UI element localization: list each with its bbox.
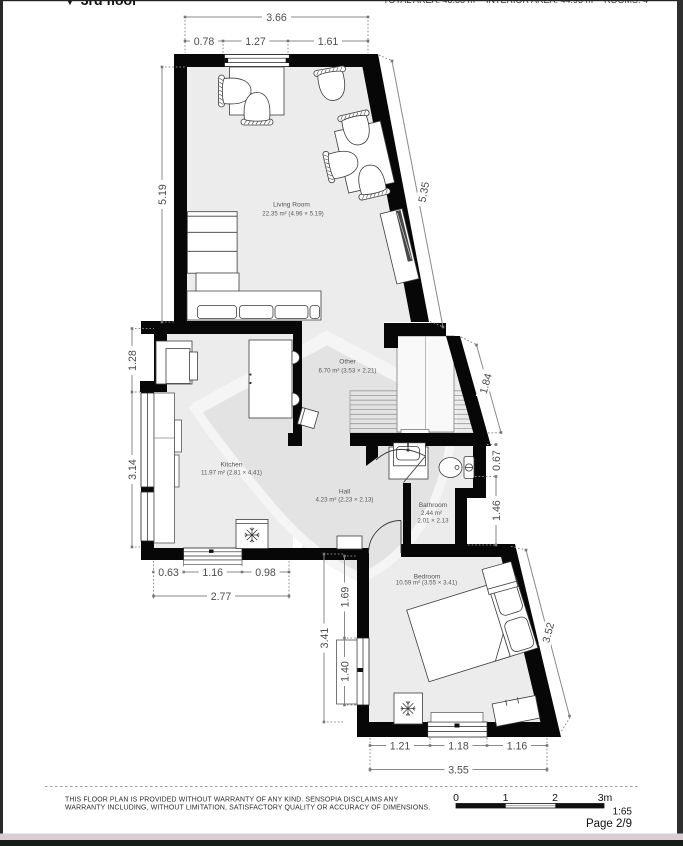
- svg-text:Page 2/9: Page 2/9: [586, 818, 632, 830]
- svg-text:10.59 m² (3.55 × 3.41): 10.59 m² (3.55 × 3.41): [396, 579, 457, 586]
- svg-text:THIS FLOOR PLAN IS PROVIDED WI: THIS FLOOR PLAN IS PROVIDED WITHOUT WARR…: [65, 797, 399, 804]
- svg-text:5.19: 5.19: [157, 184, 169, 205]
- svg-text:0.67: 0.67: [491, 450, 503, 471]
- svg-text:0.63: 0.63: [158, 567, 179, 579]
- svg-text:Other: Other: [339, 359, 356, 366]
- svg-text:2: 2: [552, 792, 558, 804]
- svg-text:1: 1: [503, 792, 509, 804]
- svg-text:1.16: 1.16: [202, 567, 223, 579]
- svg-text:3.41: 3.41: [319, 628, 331, 649]
- svg-text:WARRANTY INCLUDING, WITHOUT LI: WARRANTY INCLUDING, WITHOUT LIMITATION, …: [65, 805, 430, 812]
- svg-text:1.27: 1.27: [245, 36, 266, 48]
- svg-text:3.66: 3.66: [266, 12, 287, 24]
- svg-text:Living Room: Living Room: [273, 202, 310, 209]
- svg-text:2.01 × 2.13: 2.01 × 2.13: [417, 518, 449, 525]
- svg-text:0.98: 0.98: [255, 567, 276, 579]
- svg-text:1.61: 1.61: [318, 36, 339, 48]
- svg-text:1.28: 1.28: [127, 350, 139, 371]
- svg-text:6.70 m² (3.53 × 2.21): 6.70 m² (3.53 × 2.21): [319, 368, 377, 375]
- svg-text:1.46: 1.46: [491, 500, 503, 521]
- svg-text:2.44 m²: 2.44 m²: [421, 510, 442, 517]
- svg-text:3.14: 3.14: [127, 459, 139, 480]
- svg-text:1:65: 1:65: [613, 807, 633, 818]
- svg-text:3.55: 3.55: [448, 764, 469, 776]
- svg-text:1.69: 1.69: [339, 587, 351, 608]
- svg-text:3m: 3m: [598, 792, 613, 804]
- svg-text:1.21: 1.21: [390, 740, 411, 752]
- svg-text:0: 0: [453, 792, 459, 804]
- svg-text:1.40: 1.40: [339, 661, 351, 682]
- svg-text:2.77: 2.77: [211, 591, 232, 603]
- svg-text:Hall: Hall: [339, 489, 351, 496]
- svg-text:1.18: 1.18: [448, 740, 469, 752]
- svg-text:4.23 m² (2.23 × 2.13): 4.23 m² (2.23 × 2.13): [316, 497, 374, 504]
- svg-text:11.97 m² (2.81 × 4.41): 11.97 m² (2.81 × 4.41): [201, 470, 262, 477]
- svg-text:Bathroom: Bathroom: [419, 502, 448, 509]
- svg-text:Kitchen: Kitchen: [221, 462, 243, 469]
- svg-text:1.16: 1.16: [507, 740, 528, 752]
- svg-text:0.78: 0.78: [194, 36, 215, 48]
- svg-text:22.35 m² (4.96 × 5.19): 22.35 m² (4.96 × 5.19): [262, 211, 323, 218]
